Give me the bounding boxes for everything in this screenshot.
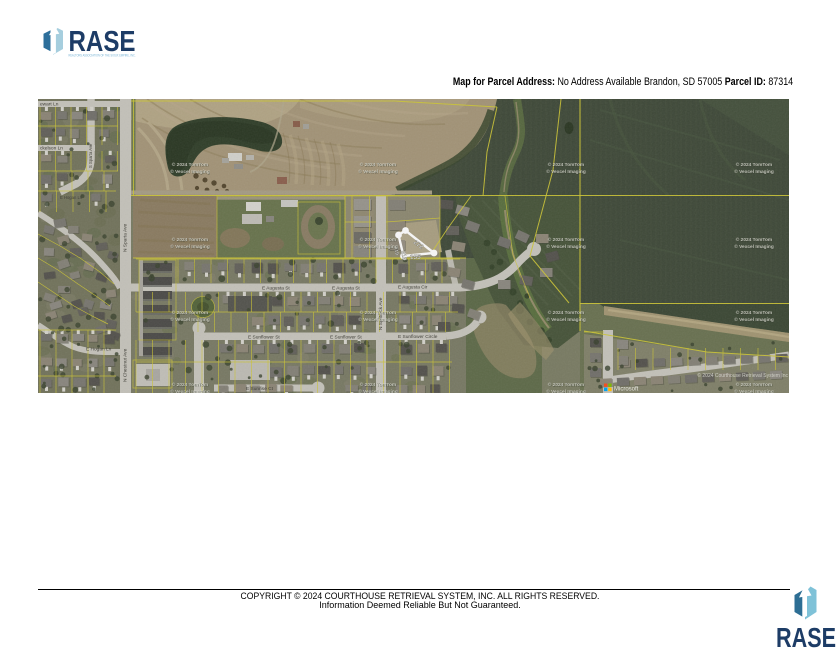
svg-text:© 2024 TomTom: © 2024 TomTom <box>172 236 208 243</box>
svg-text:© 2024 TomTom: © 2024 TomTom <box>548 161 584 168</box>
svg-text:© 2024 TomTom: © 2024 TomTom <box>548 236 584 243</box>
svg-text:© Vexcel Imaging: © Vexcel Imaging <box>734 168 774 175</box>
svg-text:© Vexcel Imaging: © Vexcel Imaging <box>358 316 398 323</box>
svg-text:© 2024 TomTom: © 2024 TomTom <box>360 381 396 388</box>
svg-text:© 2024 TomTom: © 2024 TomTom <box>736 381 772 388</box>
svg-text:© Vexcel Imaging: © Vexcel Imaging <box>546 168 586 175</box>
svg-text:© Vexcel Imaging: © Vexcel Imaging <box>170 243 210 250</box>
svg-text:© 2024 TomTom: © 2024 TomTom <box>548 309 584 316</box>
svg-text:© Vexcel Imaging: © Vexcel Imaging <box>734 316 774 323</box>
svg-text:© 2024 TomTom: © 2024 TomTom <box>172 309 208 316</box>
svg-text:© 2024 TomTom: © 2024 TomTom <box>736 309 772 316</box>
svg-text:© 2024 TomTom: © 2024 TomTom <box>736 236 772 243</box>
svg-text:© Vexcel Imaging: © Vexcel Imaging <box>358 168 398 175</box>
svg-text:© 2024 TomTom: © 2024 TomTom <box>548 381 584 388</box>
svg-text:© Vexcel Imaging: © Vexcel Imaging <box>546 243 586 250</box>
svg-text:Microsoft: Microsoft <box>614 387 639 393</box>
svg-text:© 2024 TomTom: © 2024 TomTom <box>172 381 208 388</box>
svg-text:© 2024 TomTom: © 2024 TomTom <box>172 161 208 168</box>
svg-text:© Vexcel Imaging: © Vexcel Imaging <box>170 316 210 323</box>
svg-text:© 2024 Courthouse Retrieval Sy: © 2024 Courthouse Retrieval System Inc <box>697 372 788 379</box>
svg-text:© Vexcel Imaging: © Vexcel Imaging <box>734 243 774 250</box>
svg-text:REALTORS ASSOCIATION OF THE SI: REALTORS ASSOCIATION OF THE SIOUX EMPIRE… <box>69 54 136 58</box>
svg-text:© 2024 TomTom: © 2024 TomTom <box>360 161 396 168</box>
svg-text:© Vexcel Imaging: © Vexcel Imaging <box>358 243 398 250</box>
svg-text:© 2024 TomTom: © 2024 TomTom <box>360 236 396 243</box>
svg-text:© 2024 TomTom: © 2024 TomTom <box>736 161 772 168</box>
svg-text:© 2024 TomTom: © 2024 TomTom <box>360 309 396 316</box>
svg-text:© Vexcel Imaging: © Vexcel Imaging <box>170 168 210 175</box>
svg-text:RASE: RASE <box>776 622 836 649</box>
svg-text:© Vexcel Imaging: © Vexcel Imaging <box>546 316 586 323</box>
